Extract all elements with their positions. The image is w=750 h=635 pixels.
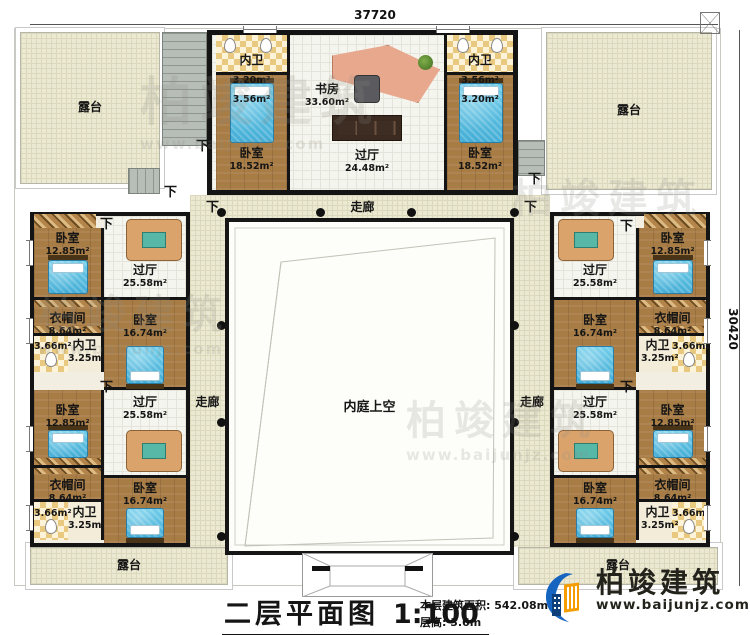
bed	[230, 83, 274, 143]
closet-shelf	[639, 300, 706, 307]
brand-name: 柏竣建筑	[596, 568, 750, 597]
room-name: 卧室	[639, 404, 706, 418]
sofa	[126, 430, 182, 472]
corridor-label: 走廊	[514, 393, 550, 410]
closet-shelf	[34, 468, 101, 474]
toilet-icon	[491, 38, 503, 53]
window	[26, 505, 33, 531]
stair-down-label: 下	[100, 213, 113, 232]
room-name: 内卫	[641, 506, 674, 520]
room-name: 卧室	[104, 482, 186, 496]
terrace-top-left: 露台	[20, 32, 160, 184]
entry-canopy	[302, 553, 433, 597]
stair-steps-left	[128, 168, 160, 194]
stair-down-label: 下	[620, 215, 633, 234]
bedroom-outer-upper-left: 卧室 12.85m²	[34, 228, 104, 300]
bed	[459, 83, 503, 143]
courtyard-floor-lines	[229, 222, 510, 551]
dimension-top-line	[30, 24, 718, 25]
room-name: 过厅	[104, 264, 186, 278]
room-area: 3.25m²	[68, 353, 101, 364]
toilet-icon	[260, 38, 272, 53]
bed	[48, 260, 88, 294]
bed	[126, 508, 164, 538]
stair-down-label: 下	[620, 376, 633, 395]
brand-website: www.baijunjz.com	[596, 597, 750, 613]
corridor-label: 走廊	[350, 198, 374, 215]
floor-area-text: 本层建筑面积: 542.08m²	[420, 598, 553, 615]
hall-lower-left: 过厅 25.58m²	[104, 390, 186, 478]
column-dot	[217, 418, 226, 427]
console-table	[332, 115, 402, 141]
bed	[126, 346, 164, 384]
bath-upper-right: 3.66m² 内卫 3.25m²	[636, 336, 706, 372]
window	[26, 240, 33, 266]
room-name: 过厅	[554, 264, 636, 278]
stair-down-label: 下	[164, 181, 177, 200]
terrace-label: 露台	[78, 101, 102, 115]
window	[704, 505, 711, 531]
chair	[354, 75, 380, 103]
window	[704, 318, 711, 344]
closet-shelf	[639, 468, 706, 474]
room-name: 内卫	[239, 53, 263, 67]
toilet-icon	[457, 38, 469, 53]
room-name: 过厅	[554, 396, 636, 410]
column-dot	[510, 321, 519, 330]
stair-hatch-right-top	[644, 214, 706, 228]
bedroom-outer-lower-left: 卧室 12.85m²	[34, 390, 104, 468]
toilet-icon	[45, 352, 57, 367]
room-name: 卧室	[554, 314, 636, 328]
closet-lower-right: 衣帽间 8.64m²	[636, 468, 706, 502]
bed	[48, 430, 88, 458]
room-name: 卧室	[639, 232, 706, 246]
closet-shelf	[34, 458, 101, 465]
room-name: 衣帽间	[654, 311, 690, 325]
closet-shelf	[34, 300, 101, 307]
room-name: 内卫	[68, 506, 101, 520]
bedroom-inner-lower-right: 卧室 16.74m²	[554, 478, 636, 543]
closet-upper-left: 衣帽间 8.64m²	[34, 300, 104, 336]
room-area: 25.58m²	[554, 410, 636, 421]
corridor-label: 走廊	[190, 393, 225, 410]
courtyard-void: 内庭上空	[225, 218, 514, 555]
room-name: 内卫	[68, 339, 101, 353]
room-name: 衣帽间	[49, 311, 85, 325]
closet-shelf	[639, 326, 706, 333]
sofa	[126, 219, 182, 261]
bed	[653, 260, 693, 294]
room-area: 3.66m²	[672, 341, 706, 352]
bedroom-top-right: 卧室 18.52m²	[444, 75, 513, 190]
room-area: 25.58m²	[104, 410, 186, 421]
room-area: 3.25m²	[68, 520, 101, 531]
corridor-right: 走廊	[514, 195, 550, 547]
room-name: 卧室	[34, 404, 101, 418]
room-name: 卧室	[447, 147, 513, 161]
dimension-right-label: 30420	[726, 308, 740, 350]
room-area: 25.58m²	[104, 278, 186, 289]
room-name: 内卫	[641, 339, 674, 353]
toilet-icon	[224, 38, 236, 53]
corridor-top: 走廊	[207, 195, 518, 218]
stair-down-label: 下	[206, 196, 219, 215]
stair-down-label: 下	[100, 376, 113, 395]
bedroom-top-left: 卧室 18.52m²	[216, 75, 290, 190]
column-dot	[217, 532, 226, 541]
sofa	[558, 430, 614, 472]
stair-down-label: 下	[528, 168, 541, 187]
corridor-left: 走廊	[190, 195, 225, 547]
room-area: 16.74m²	[554, 496, 636, 507]
sofa	[558, 219, 614, 261]
hall-upper-left: 过厅 25.58m²	[104, 216, 186, 300]
window	[243, 26, 277, 33]
bedroom-outer-lower-right: 卧室 12.85m²	[636, 390, 706, 468]
room-name: 内卫	[468, 53, 492, 67]
plant	[418, 55, 433, 70]
window	[436, 26, 470, 33]
room-area: 18.52m²	[216, 161, 287, 172]
room-area: 16.74m²	[104, 496, 186, 507]
window	[26, 426, 33, 452]
room-name: 卧室	[34, 232, 101, 246]
window	[26, 318, 33, 344]
bedroom-inner-upper-left: 卧室 16.74m²	[104, 300, 186, 390]
closet-lower-left: 衣帽间 8.64m²	[34, 468, 104, 502]
room-area: 18.52m²	[447, 161, 513, 172]
window	[704, 240, 711, 266]
room-name: 卧室	[216, 147, 287, 161]
stair-hatch-left-top	[34, 214, 96, 228]
room-area: 3.66m²	[672, 508, 706, 519]
room-area: 3.66m²	[34, 341, 68, 352]
bed	[653, 430, 693, 458]
window	[704, 426, 711, 452]
terrace-bottom-left: 露台	[30, 547, 228, 585]
bath-lower-left: 3.66m² 内卫 3.25m²	[34, 502, 104, 540]
toilet-icon	[45, 519, 57, 534]
column-dot	[510, 532, 519, 541]
bed	[576, 508, 614, 538]
room-area: 24.48m²	[290, 163, 444, 174]
bedroom-outer-upper-right: 卧室 12.85m²	[636, 228, 706, 300]
desk	[332, 45, 440, 103]
room-name: 卧室	[104, 314, 186, 328]
terrace-label: 露台	[117, 559, 141, 573]
room-area: 16.74m²	[104, 328, 186, 339]
room-area: 3.25m²	[641, 353, 674, 364]
toilet-icon	[683, 352, 695, 367]
stair-down-label: 下	[524, 196, 537, 215]
closet-shelf	[639, 458, 706, 465]
terrace-label: 露台	[617, 104, 641, 118]
closet-shelf	[34, 326, 101, 333]
room-area: 16.74m²	[554, 328, 636, 339]
closet-upper-right: 衣帽间 8.64m²	[636, 300, 706, 336]
column-dot	[217, 321, 226, 330]
column-dot	[510, 208, 519, 217]
stair-down-label: 下	[196, 135, 209, 154]
toilet-icon	[683, 519, 695, 534]
room-area: 25.58m²	[554, 278, 636, 289]
stairwell-top-left	[162, 32, 207, 146]
room-area: 3.66m²	[34, 508, 68, 519]
floor-plan: 37720 30420 露台 露台 露台 露台 走廊 走廊 走廊 内庭上空	[0, 0, 750, 635]
drawing-info: 本层建筑面积: 542.08m² 层高: 3.6m	[420, 598, 553, 631]
room-name: 衣帽间	[654, 478, 690, 492]
bed	[576, 346, 614, 384]
bath-top-right: 内卫 3.56m² 3.20m²	[444, 35, 513, 75]
bath-upper-left: 3.66m² 内卫 3.25m²	[34, 336, 104, 372]
logo-icon	[540, 568, 590, 624]
column-dot	[407, 208, 416, 217]
room-name: 衣帽间	[49, 478, 85, 492]
room-name: 过厅	[290, 149, 444, 163]
room-name: 卧室	[554, 482, 636, 496]
chimney-column	[700, 12, 720, 34]
title-text: 二层平面图	[224, 599, 379, 630]
bath-top-left: 内卫 3.20m² 3.56m²	[216, 35, 290, 75]
column-dot	[510, 418, 519, 427]
study-room: 书房 33.60m²	[290, 35, 444, 145]
room-name: 过厅	[104, 396, 186, 410]
room-area: 3.25m²	[641, 520, 674, 531]
hall-top: 过厅 24.48m²	[290, 145, 444, 190]
hall-lower-right: 过厅 25.58m²	[554, 390, 636, 478]
terrace-top-right: 露台	[546, 32, 712, 190]
floor-height-text: 层高: 3.6m	[420, 615, 553, 632]
column-dot	[316, 208, 325, 217]
bath-lower-right: 3.66m² 内卫 3.25m²	[636, 502, 706, 540]
company-logo: 柏竣建筑 www.baijunjz.com	[540, 568, 750, 624]
dimension-top-label: 37720	[0, 8, 750, 22]
bedroom-inner-lower-left: 卧室 16.74m²	[104, 478, 186, 543]
